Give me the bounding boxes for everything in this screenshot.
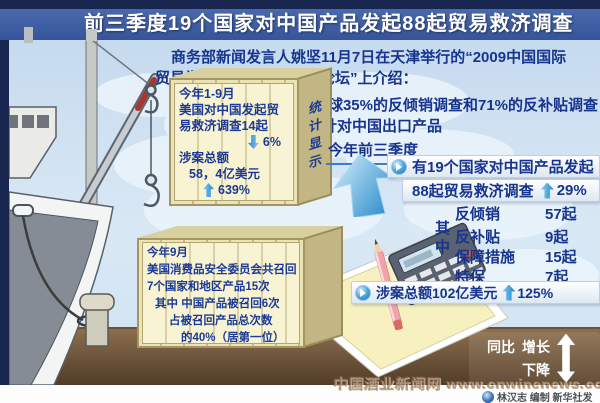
intro-line-1: 商务部新闻发言人姚坚11月7日在天津举行的“2009中国国际 (171, 46, 566, 67)
headline-bar-2: 88起贸易救济调查 29% (402, 179, 600, 202)
recall-line: 占被召回产品总次数 (147, 313, 295, 330)
us-stats-panel: 今年1-9月 美国对中国发起贸 易救济调查14起 6% 涉案总额 58，4亿美元… (174, 83, 294, 201)
bullet-icon (391, 159, 407, 175)
among-label: 其中 (433, 220, 450, 258)
us-stats-line: 易救济调查14起 (179, 118, 289, 134)
legend-prefix: 同比 (487, 337, 515, 357)
us-stats-rise: 639% (179, 182, 289, 198)
breakdown-row: 反倾销 57起 (455, 203, 577, 224)
headline-rise-value: 29% (557, 182, 587, 199)
breakdown-row: 反补贴 9起 (455, 226, 568, 247)
recall-stats-panel: 今年9月 美国消费品安全委员会共召回 7个国家和地区产品15次 其中 中国产品被… (142, 242, 300, 344)
amount-bar: 涉案总额102亿美元 125% (351, 281, 600, 304)
breakdown-label: 保障措施 (455, 246, 545, 267)
breakdown-value: 57起 (545, 203, 577, 224)
ship-windows (9, 115, 49, 128)
up-arrow-icon (502, 285, 515, 301)
breakdown-label: 反倾销 (455, 203, 545, 224)
us-amount-value: 58，4亿美元 (179, 166, 289, 182)
headline-line-1: 有19个国家对中国产品发起 (412, 156, 594, 177)
breakdown-label: 反补贴 (455, 226, 545, 247)
headline-bar-1: 有19个国家对中国产品发起 (387, 155, 600, 178)
infographic: 商务部新闻发言人姚坚11月7日在天津举行的“2009中国国际 贸易学会暨国际贸易… (0, 0, 600, 403)
recall-line: 的40%（居第一位） (147, 330, 295, 347)
breakdown-row: 保障措施 15起 (455, 246, 577, 267)
xinhua-logo-icon (482, 391, 494, 403)
scene: 商务部新闻发言人姚坚11月7日在天津举行的“2009中国国际 贸易学会暨国际贸易… (9, 40, 600, 385)
top-border (0, 0, 600, 9)
us-drop-value: 6% (263, 134, 281, 150)
us-amount-label: 涉案总额 (179, 150, 289, 166)
bollard-icon (86, 306, 108, 346)
credit-text: 林汉志 编制 新华社发 (497, 389, 593, 403)
left-border (0, 40, 9, 385)
bullet-icon (355, 285, 371, 301)
crate-side-label: 统计显示 (305, 98, 324, 176)
recall-line: 美国消费品安全委员会共召回 (147, 262, 295, 279)
up-arrow-icon (203, 183, 214, 197)
flagpole-top-icon (24, 27, 33, 43)
up-arrow-icon (541, 183, 554, 199)
us-stats-line: 今年1-9月 (179, 86, 289, 102)
up-arrow-icon (557, 334, 575, 360)
us-rise-value: 639% (218, 182, 250, 198)
credit-line: 林汉志 编制 新华社发 (482, 389, 593, 403)
legend-up-label: 增长 (522, 337, 550, 357)
crate-side-face (303, 226, 343, 348)
us-stats-drop: 6% (179, 134, 289, 150)
intro-line-4: 针对中国出口产品 (322, 115, 442, 136)
amount-line: 涉案总额102亿美元 (376, 283, 497, 303)
crate-side-face: 统计显示 (297, 67, 332, 206)
headline-line-2: 88起贸易救济调查 (412, 180, 534, 201)
down-arrow-icon (248, 135, 259, 149)
breakdown-value: 9起 (545, 226, 568, 247)
breakdown-value: 15起 (545, 246, 577, 267)
page-title: 前三季度19个国家对中国产品发起88起贸易救济调查 (84, 9, 574, 40)
mast-top-icon (86, 29, 97, 41)
recall-line: 今年9月 (147, 245, 295, 262)
us-stats-line: 美国对中国发起贸 (179, 102, 289, 118)
amount-rise-value: 125% (517, 285, 553, 301)
recall-line: 7个国家和地区产品15次 (147, 279, 295, 296)
recall-line: 其中 中国产品被召回6次 (147, 296, 295, 313)
ship-icon (9, 107, 114, 385)
legend-up-row: 同比 增长 (487, 335, 575, 358)
